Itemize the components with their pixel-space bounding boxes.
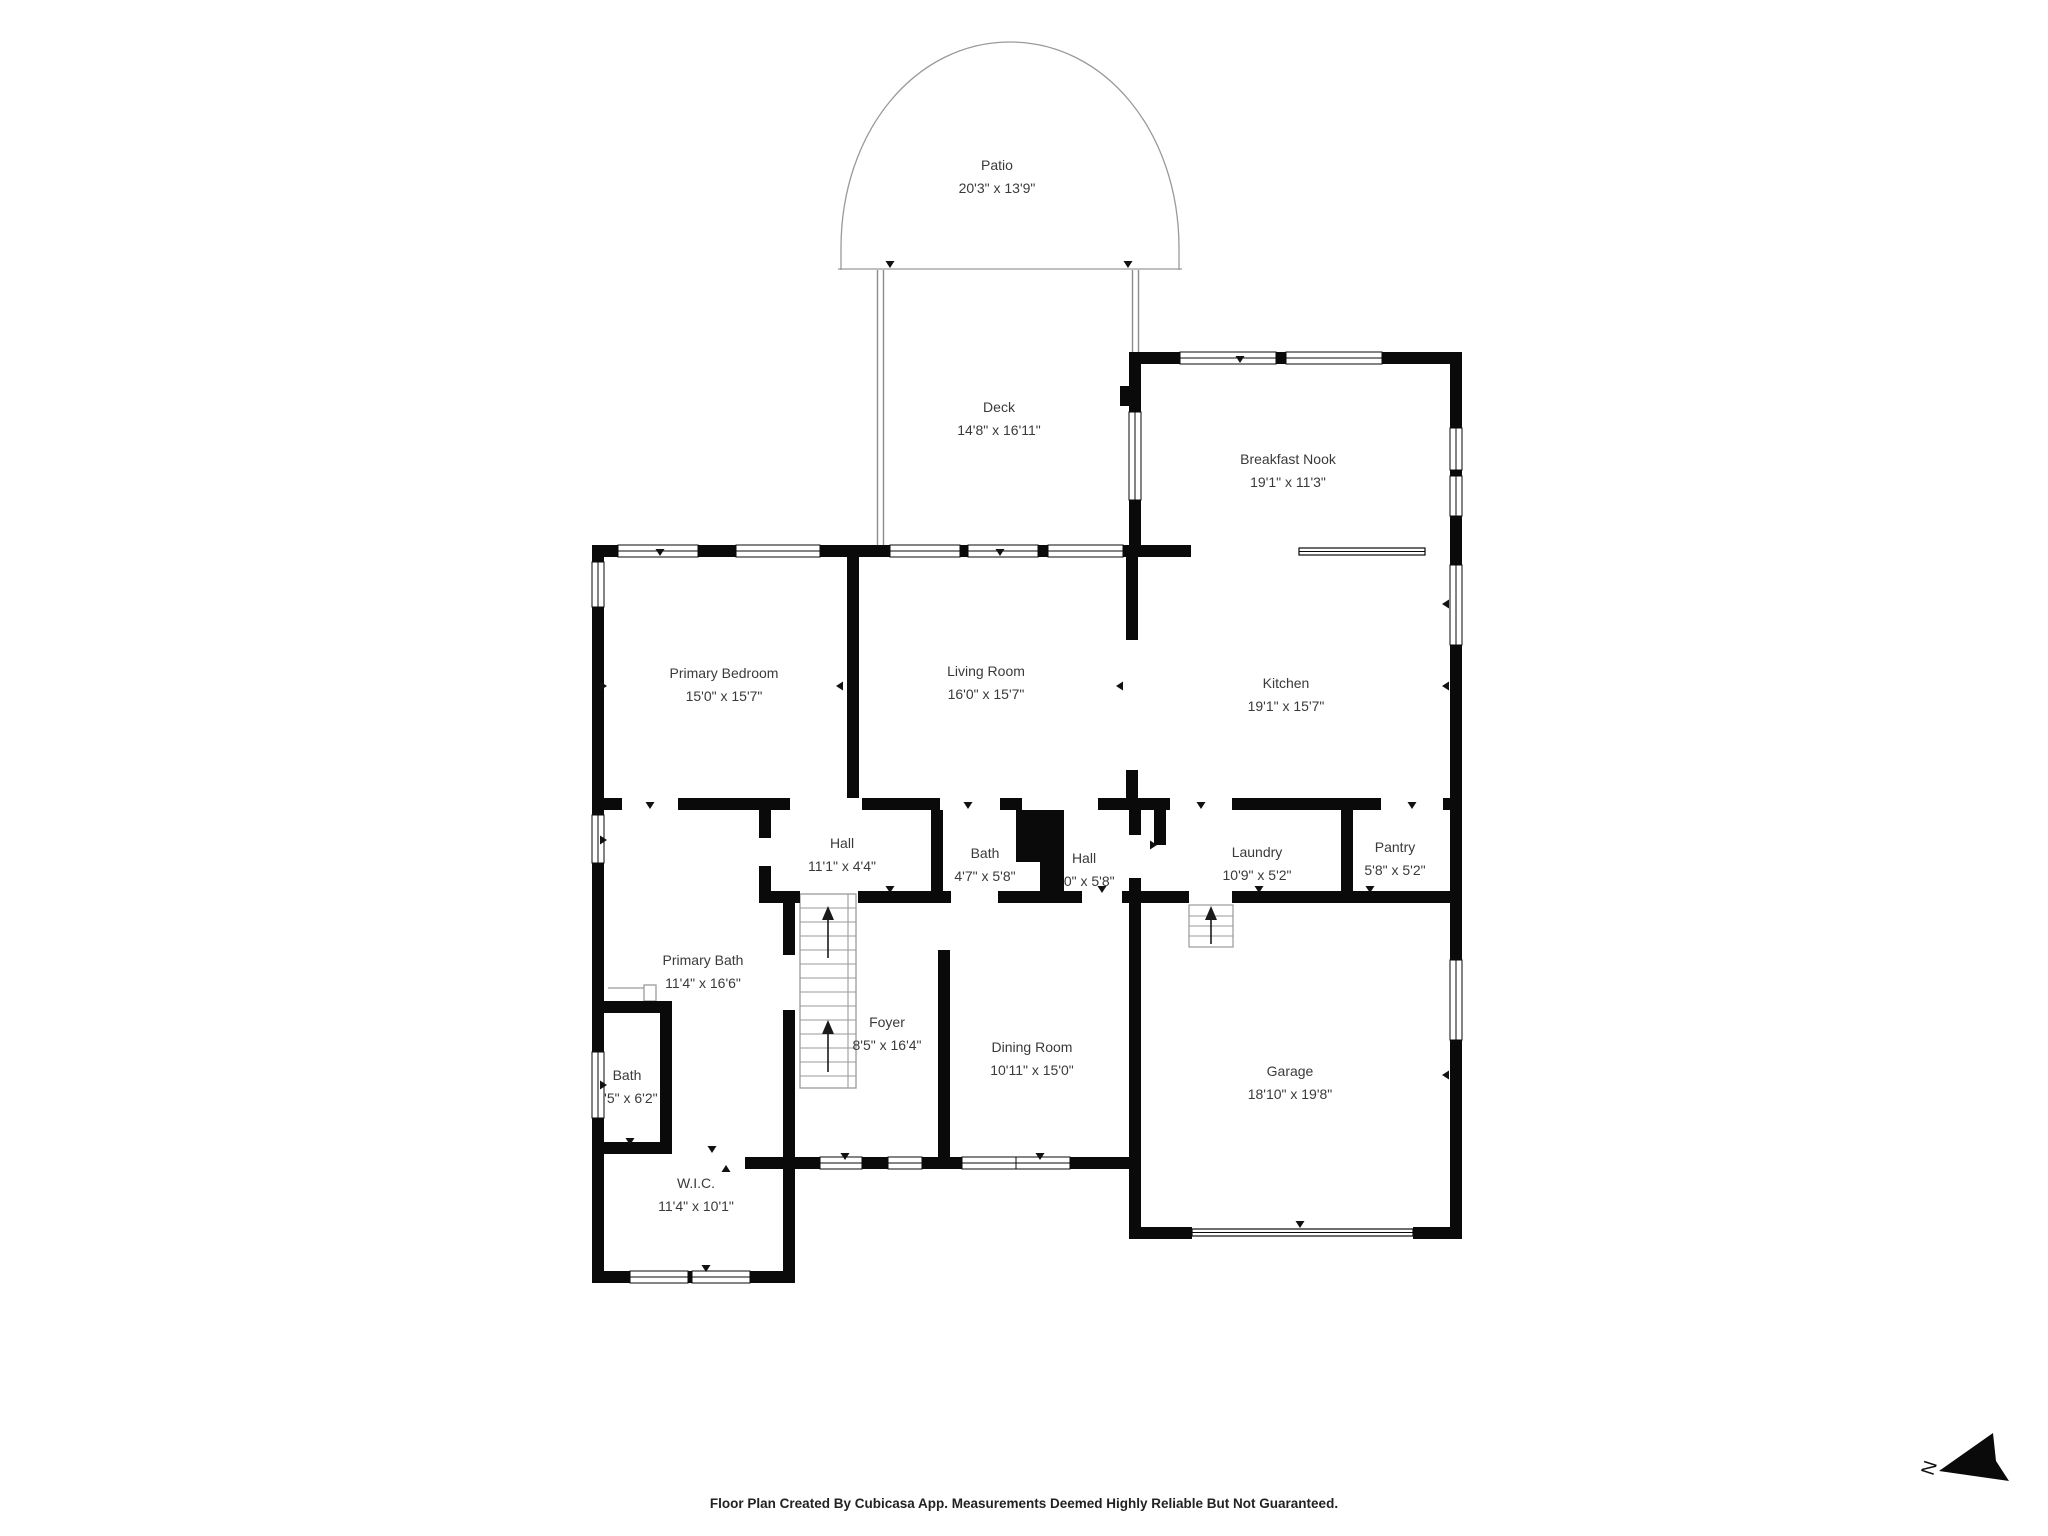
staircase <box>800 894 856 1088</box>
room-dims-bath: 4'7" x 5'8" <box>954 868 1015 884</box>
room-dims-primary-bedroom: 15'0" x 15'7" <box>686 688 763 704</box>
room-label-bath-2: Bath <box>613 1067 642 1083</box>
room-label-garage: Garage <box>1267 1063 1314 1079</box>
room-label-laundry: Laundry <box>1232 844 1283 860</box>
footer-disclaimer: Floor Plan Created By Cubicasa App. Meas… <box>0 1496 2048 1511</box>
room-label-kitchen: Kitchen <box>1263 675 1310 691</box>
room-label-primary-bath: Primary Bath <box>663 952 744 968</box>
room-dims-foyer: 8'5" x 16'4" <box>853 1037 922 1053</box>
room-label-wic: W.I.C. <box>677 1175 715 1191</box>
room-labels: Patio20'3" x 13'9"Deck14'8" x 16'11"Brea… <box>596 157 1425 1214</box>
room-label-hall: Hall <box>830 835 854 851</box>
door-ticks <box>600 261 1449 1272</box>
room-label-deck: Deck <box>983 399 1016 415</box>
room-dims-patio: 20'3" x 13'9" <box>959 180 1036 196</box>
walls <box>592 352 1462 1283</box>
room-dims-primary-bath: 11'4" x 16'6" <box>665 975 741 991</box>
room-dims-laundry: 10'9" x 5'2" <box>1223 867 1292 883</box>
kitchen-counter <box>1299 548 1425 555</box>
room-dims-dining-room: 10'11" x 15'0" <box>990 1062 1074 1078</box>
room-dims-breakfast-nook: 19'1" x 11'3" <box>1250 474 1326 490</box>
room-label-dining-room: Dining Room <box>992 1039 1073 1055</box>
garage-steps <box>1189 905 1233 947</box>
room-label-primary-bedroom: Primary Bedroom <box>670 665 779 681</box>
room-dims-deck: 14'8" x 16'11" <box>957 422 1041 438</box>
room-dims-pantry: 5'8" x 5'2" <box>1364 862 1425 878</box>
room-label-bath: Bath <box>971 845 1000 861</box>
room-label-foyer: Foyer <box>869 1014 905 1030</box>
room-dims-bath-2: 3'5" x 6'2" <box>596 1090 657 1106</box>
patio-outline <box>838 42 1182 270</box>
room-dims-kitchen: 19'1" x 15'7" <box>1248 698 1325 714</box>
north-label: N <box>1918 1458 1942 1478</box>
room-dims-garage: 18'10" x 19'8" <box>1248 1086 1333 1102</box>
garage-door <box>1192 1229 1413 1236</box>
room-label-breakfast-nook: Breakfast Nook <box>1240 451 1337 467</box>
room-dims-wic: 11'4" x 10'1" <box>658 1198 734 1214</box>
room-dims-hall: 11'1" x 4'4" <box>808 858 876 874</box>
floor-plan-svg: Patio20'3" x 13'9"Deck14'8" x 16'11"Brea… <box>0 0 2048 1536</box>
floor-plan-page: Patio20'3" x 13'9"Deck14'8" x 16'11"Brea… <box>0 0 2048 1536</box>
north-arrow-icon <box>1939 1433 2009 1481</box>
room-label-hall-2: Hall <box>1072 850 1096 866</box>
room-label-living-room: Living Room <box>947 663 1025 679</box>
room-label-patio: Patio <box>981 157 1013 173</box>
room-label-pantry: Pantry <box>1375 839 1415 855</box>
room-dims-living-room: 16'0" x 15'7" <box>948 686 1025 702</box>
north-compass: N <box>1918 1433 2009 1481</box>
